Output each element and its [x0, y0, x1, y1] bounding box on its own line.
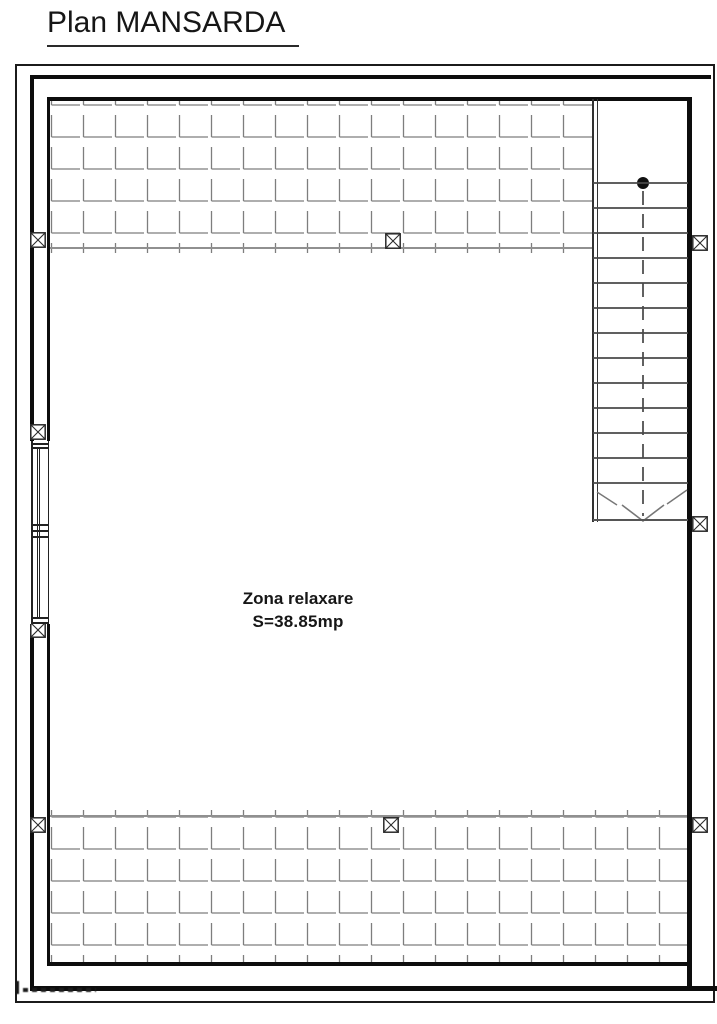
- x-marker-icon: [30, 424, 46, 440]
- window-divider: [31, 536, 49, 538]
- roof-hatch-top: [50, 99, 592, 253]
- room-wall-bottom: [47, 962, 690, 966]
- window-divider: [31, 622, 49, 624]
- column-marker: [30, 232, 46, 248]
- window-frame-left: [31, 441, 33, 624]
- column-marker: [692, 516, 708, 532]
- window-glazing-line: [39, 447, 40, 618]
- stairwell-svg: [592, 98, 692, 528]
- watermark-mark: [16, 981, 19, 994]
- hatch-bottom-boundary-line: [48, 815, 689, 817]
- page-title: Plan MANSARDA: [47, 4, 299, 47]
- window-frame-right: [48, 441, 50, 624]
- hatch-top-boundary-line: [48, 247, 594, 249]
- window-divider: [31, 617, 49, 619]
- x-marker-icon: [30, 817, 46, 833]
- floor-plan-canvas: Plan MANSARDA: [0, 0, 717, 1024]
- roof-hatch-bottom: [50, 810, 688, 964]
- wall-bottom: [30, 986, 717, 991]
- stair-break-mark-left: [597, 492, 617, 505]
- room-name: Zona relaxare: [223, 589, 373, 609]
- x-marker-icon: [30, 232, 46, 248]
- column-marker: [692, 817, 708, 833]
- x-marker-icon: [385, 233, 401, 249]
- column-marker: [692, 235, 708, 251]
- window-divider: [31, 443, 49, 445]
- window-divider: [31, 530, 49, 532]
- window-divider: [31, 524, 49, 526]
- x-marker-icon: [383, 817, 399, 833]
- x-marker-icon: [30, 622, 46, 638]
- column-marker: [30, 424, 46, 440]
- watermark-smudge: [16, 981, 98, 996]
- wall-left-upper: [30, 75, 34, 441]
- window-glazing-line: [37, 447, 38, 618]
- window-divider: [31, 447, 49, 449]
- x-marker-icon: [692, 516, 708, 532]
- column-marker: [383, 817, 399, 833]
- wall-left-lower: [30, 624, 34, 990]
- column-marker: [385, 233, 401, 249]
- room-label: Zona relaxare S=38.85mp: [223, 589, 373, 632]
- room-area: S=38.85mp: [223, 612, 373, 632]
- x-marker-icon: [692, 817, 708, 833]
- column-marker: [30, 817, 46, 833]
- stair-break-mark-right: [667, 490, 687, 504]
- x-marker-icon: [692, 235, 708, 251]
- window-assembly: [29, 441, 51, 624]
- watermark-dashes: [23, 988, 96, 992]
- wall-top: [30, 75, 711, 79]
- column-marker: [30, 622, 46, 638]
